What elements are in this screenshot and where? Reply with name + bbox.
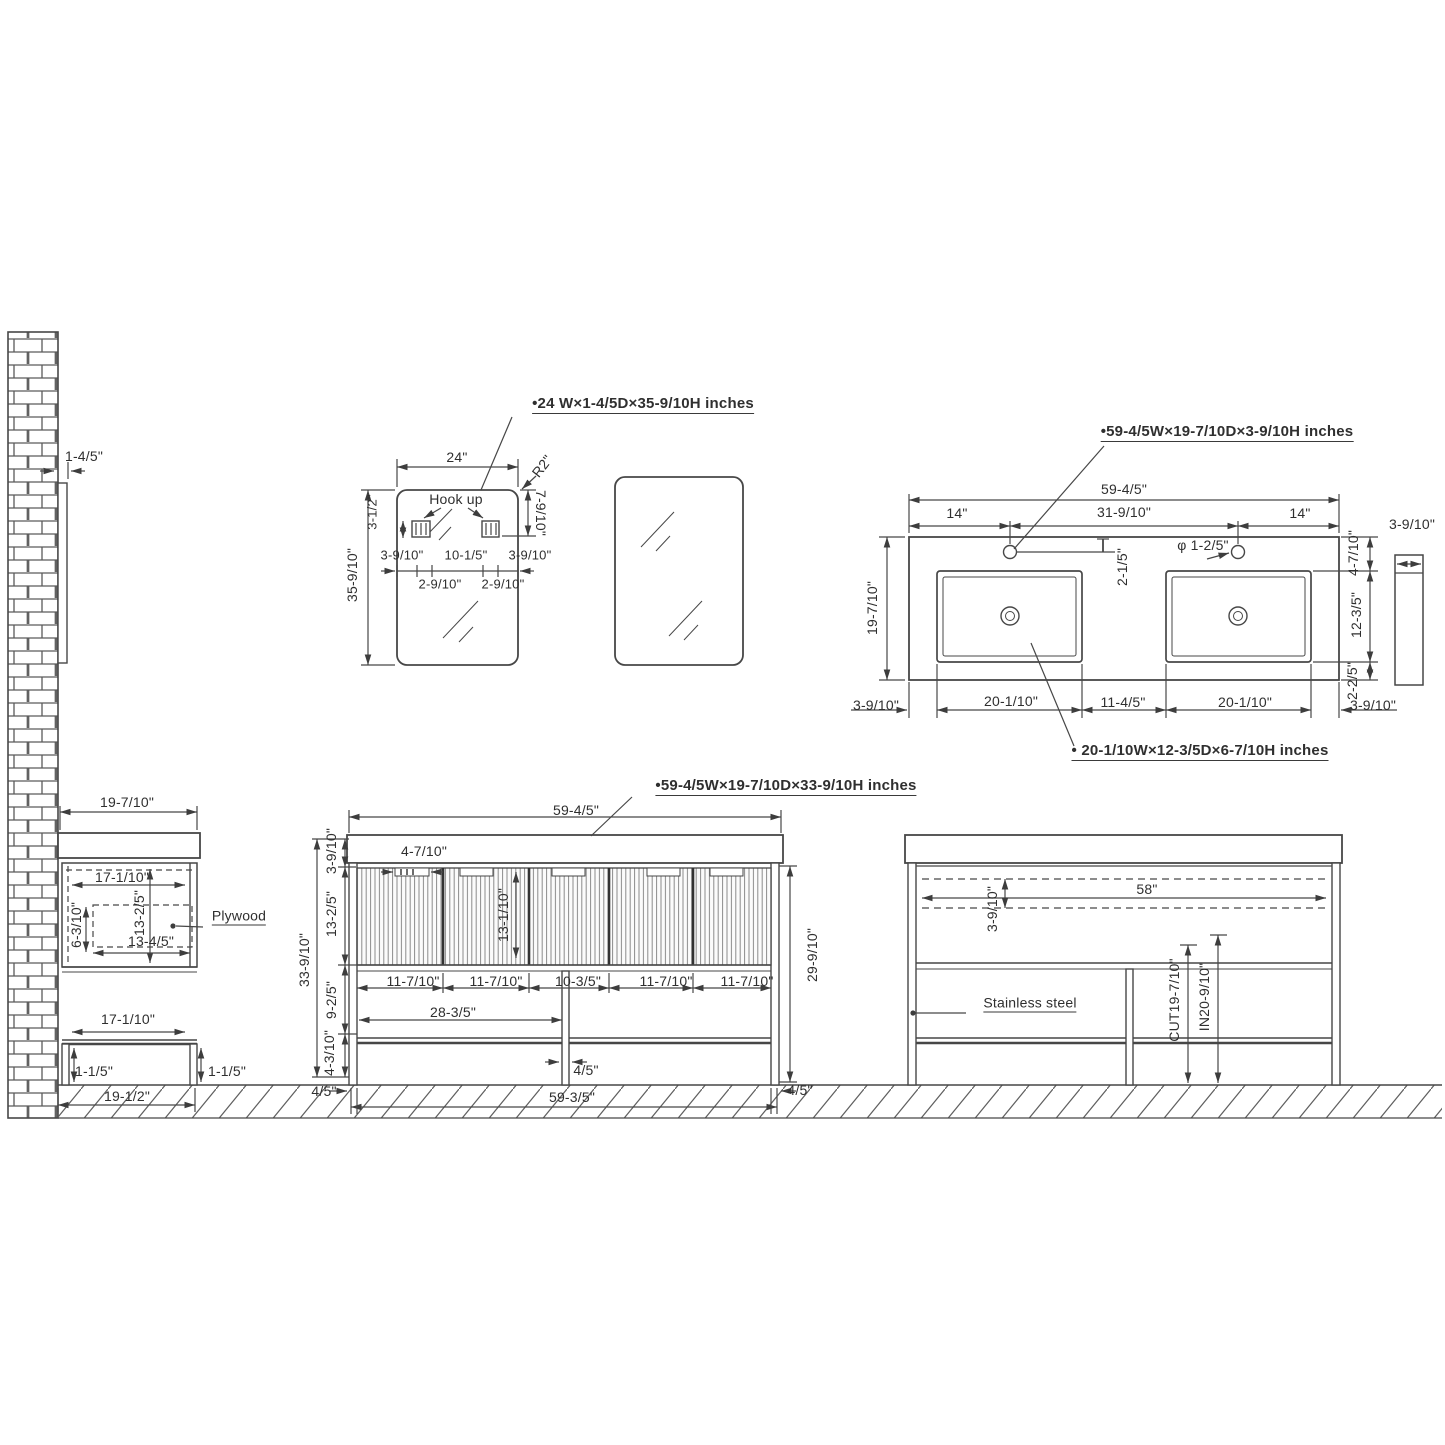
rear-inset-dim: 3-9/10" xyxy=(985,886,999,932)
vanity-title: •59-4/5W×19-7/10D×33-9/10H inches xyxy=(655,778,916,796)
front-seg1-dim: 11-7/10" xyxy=(386,974,439,988)
front-shelf-height-dim: 9-2/5" xyxy=(324,981,338,1019)
countertop-title: •59-4/5W×19-7/10D×3-9/10H inches xyxy=(1101,424,1354,442)
front-frame-height-dim: 29-9/10" xyxy=(805,928,819,982)
countertop-front-dim: 2-2/5" xyxy=(1345,662,1359,700)
mirror-dim-2910-right: 2-9/10" xyxy=(482,578,525,591)
side-leg-right-dim: 1-1/5" xyxy=(208,1064,246,1078)
stainless-steel-label: Stainless steel xyxy=(983,996,1076,1013)
countertop-hole-diameter-dim: φ 1-2/5" xyxy=(1177,538,1228,552)
front-foot-left-dim: 4/5" xyxy=(311,1084,336,1098)
front-seg4-dim: 11-7/10" xyxy=(639,974,692,988)
mirror-width-dim: 24" xyxy=(446,450,467,464)
side-leg-left-dim: 1-1/5" xyxy=(75,1064,113,1078)
front-total-height-dim: 33-9/10" xyxy=(297,933,311,987)
front-door-height-dim: 13-2/5" xyxy=(324,891,338,937)
drawing-canvas xyxy=(0,0,1445,1445)
front-half-width-dim: 28-3/5" xyxy=(430,1005,476,1019)
countertop-back-dim: 4-7/10" xyxy=(1346,530,1360,576)
countertop-width-dim: 59-4/5" xyxy=(1101,482,1147,496)
front-door-inner-dim: 13-1/10" xyxy=(496,888,510,942)
countertop-14-right-dim: 14" xyxy=(1289,506,1310,520)
front-width-dim: 59-4/5" xyxy=(553,803,599,817)
countertop-center-dim: 31-9/10" xyxy=(1097,505,1151,519)
rear-view xyxy=(905,835,1342,1085)
side-plywood-width-dim: 13-4/5" xyxy=(128,934,174,948)
rear-cut-height-dim: CUT19-7/10" xyxy=(1167,958,1181,1041)
countertop-basin-depth-dim: 12-3/5" xyxy=(1349,592,1363,638)
mirror-title: •24 W×1-4/5D×35-9/10H inches xyxy=(532,396,754,414)
front-notch-dim: 4-7/10" xyxy=(401,844,447,858)
side-plywood-height-dim: 6-3/10" xyxy=(69,902,83,948)
side-shelf-width-dim: 17-1/10" xyxy=(101,1012,155,1026)
countertop-thickness-dim: 3-9/10" xyxy=(1389,517,1435,531)
countertop-depth-dim: 19-7/10" xyxy=(865,581,879,635)
mirror-views xyxy=(361,417,743,665)
side-inner-width-dim: 17-1/10" xyxy=(95,870,149,884)
sink-size-label: • 20-1/10W×12-3/5D×6-7/10H inches xyxy=(1072,743,1329,761)
front-seg5-dim: 11-7/10" xyxy=(720,974,773,988)
front-counter-height-dim: 3-9/10" xyxy=(324,828,338,874)
mirror-height-dim: 35-9/10" xyxy=(345,548,359,602)
countertop-bottom-3910-right: 3-9/10" xyxy=(1350,698,1396,712)
countertop-bottom-20110-left: 20-1/10" xyxy=(984,694,1038,708)
countertop-bottom-3910-left: 3-9/10" xyxy=(853,698,899,712)
front-foot-right-dim: 4/5" xyxy=(787,1083,812,1097)
rear-width-dim: 58" xyxy=(1136,882,1157,896)
front-post-dim: 4/5" xyxy=(573,1063,598,1077)
mirror-hook-height-dim: 7-9/10" xyxy=(534,490,548,536)
mirror-dim-1015: 10-1/5" xyxy=(445,549,488,562)
plywood-label: Plywood xyxy=(212,909,266,926)
side-base-dim: 19-1/2" xyxy=(104,1089,150,1103)
front-seg2-dim: 11-7/10" xyxy=(469,974,522,988)
vanity-technical-drawing: 1-4/5" •24 W×1-4/5D×35-9/10H inches 24" … xyxy=(0,0,1445,1445)
side-inner-height-dim: 13-2/5" xyxy=(132,890,146,936)
side-depth-dim: 19-7/10" xyxy=(100,795,154,809)
front-seg3-dim: 10-3/5" xyxy=(555,974,601,988)
countertop-faucet-offset-dim: 2-1/5" xyxy=(1115,548,1129,586)
countertop-bottom-20110-right: 20-1/10" xyxy=(1218,695,1272,709)
countertop-14-left-dim: 14" xyxy=(946,506,967,520)
floor-section xyxy=(58,1085,1442,1118)
front-view xyxy=(312,797,797,1114)
wall-gap-dim: 1-4/5" xyxy=(65,449,103,463)
mirror-dim-3910-left: 3-9/10" xyxy=(381,549,424,562)
front-base-dim: 59-3/5" xyxy=(549,1090,595,1104)
countertop-bottom-1145: 11-4/5" xyxy=(1100,695,1145,709)
front-leg-height-dim: 4-3/10" xyxy=(322,1030,336,1076)
rear-inner-height-dim: IN20-9/10" xyxy=(1197,963,1211,1031)
mirror-hook-offset-dim: 3-1/2" xyxy=(366,494,379,529)
mirror-dim-2910-left: 2-9/10" xyxy=(419,578,462,591)
mirror-hookup-label: Hook up xyxy=(429,492,483,506)
mirror-dim-3910-right: 3-9/10" xyxy=(509,549,552,562)
